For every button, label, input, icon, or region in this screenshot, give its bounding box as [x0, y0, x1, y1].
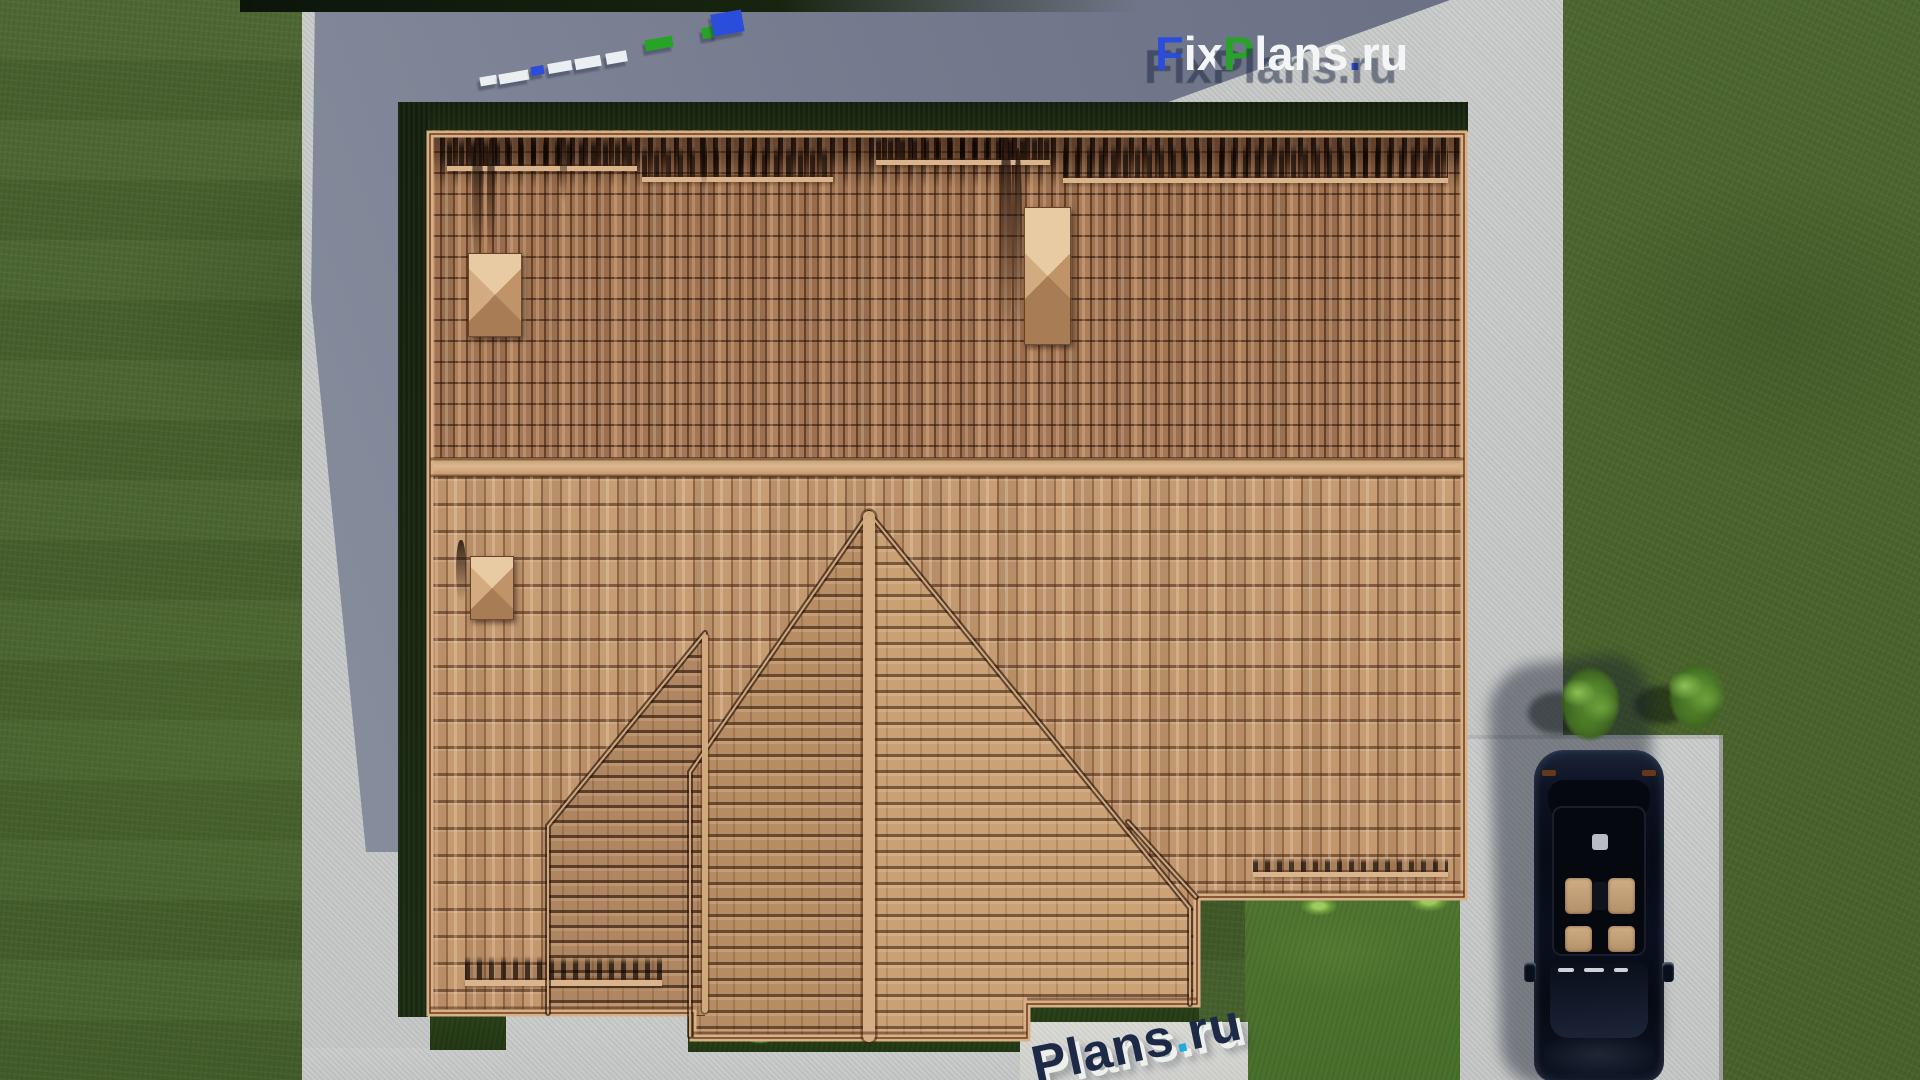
watermark-block — [479, 75, 497, 87]
aerial-render-scene: Plans.ru — [0, 0, 1920, 1080]
fixplans-logo: FixPlans.ru — [1155, 26, 1408, 81]
watermark-block — [644, 36, 673, 52]
logo-ru: ru — [1361, 27, 1408, 80]
logo-dot: . — [1348, 27, 1361, 80]
watermark-block — [710, 9, 744, 36]
watermark-block — [498, 69, 529, 84]
watermark-block — [574, 55, 602, 70]
watermark-block — [530, 65, 544, 76]
logo-ix: ix — [1184, 27, 1223, 80]
perspective-watermark — [0, 0, 1920, 1080]
logo-lans: lans — [1254, 27, 1348, 80]
logo-p: P — [1223, 27, 1254, 80]
logo-f: F — [1155, 27, 1184, 80]
watermark-block — [605, 50, 628, 64]
watermark-block — [547, 60, 572, 74]
